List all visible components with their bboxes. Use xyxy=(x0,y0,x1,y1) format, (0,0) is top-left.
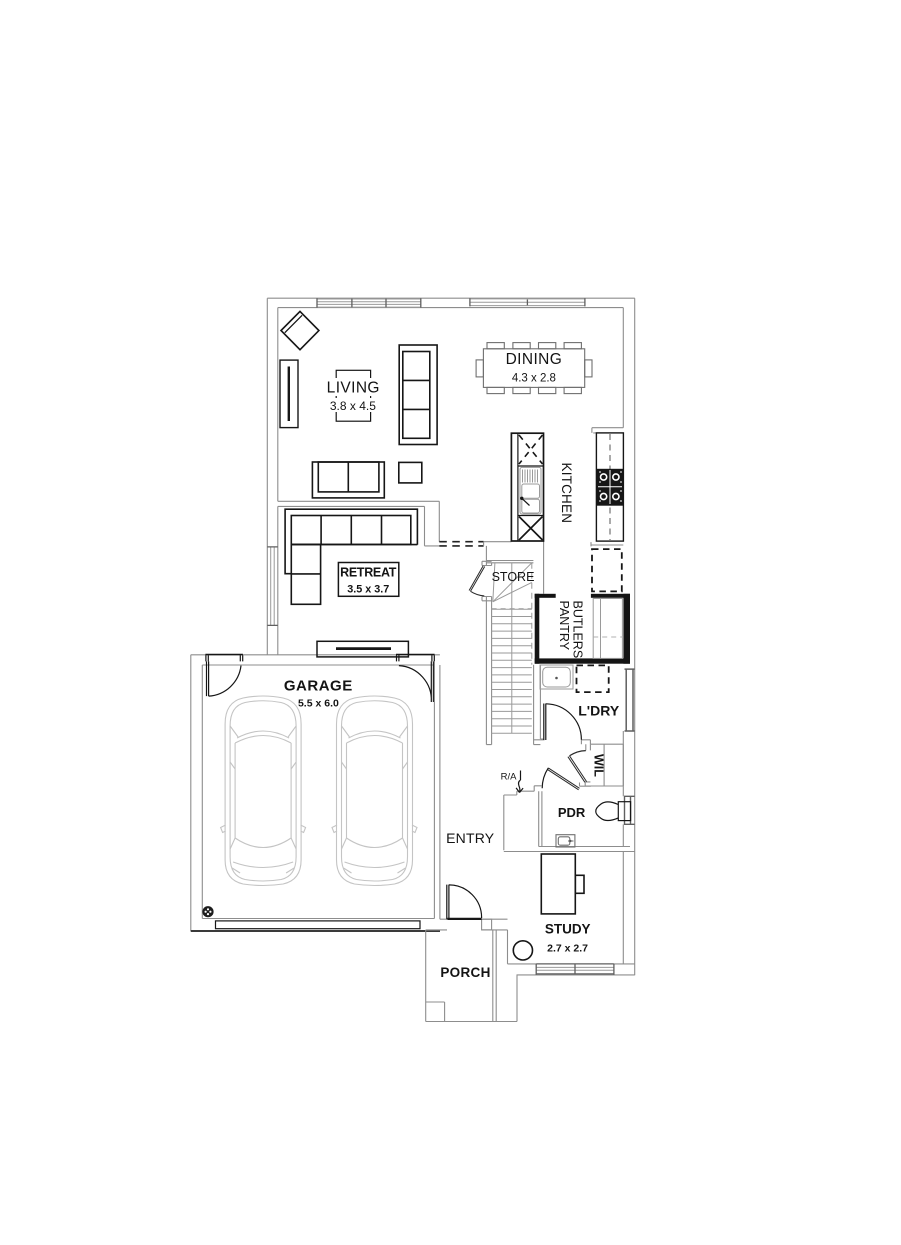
svg-text:DINING: DINING xyxy=(506,351,563,368)
svg-text:PDR: PDR xyxy=(558,805,586,820)
svg-text:BUTLERSPANTRY: BUTLERSPANTRY xyxy=(557,601,585,659)
svg-text:ENTRY: ENTRY xyxy=(446,830,495,846)
svg-text:STORE: STORE xyxy=(492,570,535,584)
svg-text:GARAGE: GARAGE xyxy=(284,678,353,695)
svg-text:LIVING: LIVING xyxy=(327,380,380,397)
svg-text:L'DRY: L'DRY xyxy=(578,703,620,719)
svg-text:5.5 x 6.0: 5.5 x 6.0 xyxy=(298,698,339,710)
svg-text:STUDY: STUDY xyxy=(545,922,591,937)
svg-text:R/A: R/A xyxy=(501,772,518,783)
svg-text:3.8 x 4.5: 3.8 x 4.5 xyxy=(330,399,376,413)
svg-text:2.7 x 2.7: 2.7 x 2.7 xyxy=(547,943,588,955)
svg-text:KITCHEN: KITCHEN xyxy=(559,463,574,524)
svg-text:PORCH: PORCH xyxy=(440,965,490,980)
svg-text:RETREAT: RETREAT xyxy=(340,566,397,580)
svg-text:3.5 x 3.7: 3.5 x 3.7 xyxy=(347,584,389,596)
svg-text:WIL: WIL xyxy=(592,754,606,777)
svg-text:4.3 x 2.8: 4.3 x 2.8 xyxy=(512,373,556,385)
